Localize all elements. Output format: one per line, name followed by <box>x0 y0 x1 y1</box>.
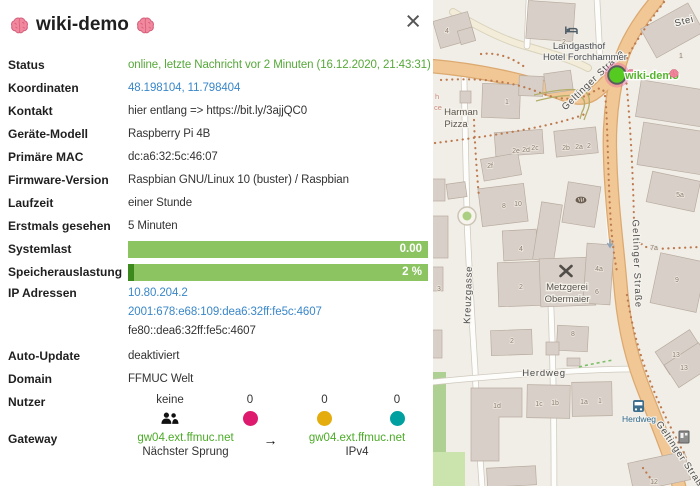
row-label: Koordinaten <box>8 81 128 96</box>
row-label: Erstmals gesehen <box>8 219 128 234</box>
cycleway <box>579 360 613 367</box>
clients-count-wifi5: 0 <box>321 393 327 408</box>
client-dot-pink-icon <box>243 411 258 426</box>
building <box>646 171 700 212</box>
row-label: IP Adressen <box>8 284 128 301</box>
row-label: Domain <box>8 372 128 387</box>
node-map-label[interactable]: wiki-demo <box>624 70 679 82</box>
building <box>637 122 700 175</box>
node-info-panel: × wiki-demo Status online, letzte Nachri… <box>0 0 433 486</box>
page-title: wiki-demo <box>36 14 129 36</box>
housenumber: 7a <box>650 245 658 252</box>
poi-hotel-name-1: Landgasthof <box>553 41 606 52</box>
building <box>635 80 700 127</box>
primary-mac-value: dc:a6:32:5c:46:07 <box>128 150 433 165</box>
node-marker-dot[interactable] <box>608 66 626 84</box>
building <box>446 182 467 199</box>
row-label: Kontakt <box>8 104 128 119</box>
housenumber: 2f <box>487 163 493 170</box>
clients-total: keine <box>156 393 184 408</box>
row-label: Status <box>8 58 128 73</box>
poi-butcher-name-2: Obermaier <box>545 294 590 305</box>
clients-icon <box>161 412 179 425</box>
building <box>546 342 559 355</box>
housenumber: 1c <box>535 401 543 408</box>
system-load-value: 0.00 <box>400 241 422 258</box>
housenumber: 2 <box>519 284 523 291</box>
housenumber: 2d <box>522 147 530 154</box>
housenumber: 9 <box>675 277 679 284</box>
street-label-kreuzgasse: Kreuzgasse <box>462 266 475 325</box>
first-seen-row: Erstmals gesehen 5 Minuten <box>8 215 433 238</box>
building <box>433 216 448 258</box>
map[interactable]: Geltinger Straße Geltinger Straße Geltin… <box>433 0 700 486</box>
client-dot-teal-icon <box>390 411 405 426</box>
row-label: Nutzer <box>8 393 128 410</box>
housenumber: 13 <box>672 352 680 359</box>
poi-pizza-name-2: Pizza <box>444 119 468 130</box>
uptime-value: einer Stunde <box>128 196 433 211</box>
building <box>533 202 563 263</box>
vending-machine-icon <box>679 431 689 443</box>
arrow-right-icon: → <box>264 432 278 448</box>
clients-row: Nutzer keine 0 0 <box>8 393 433 426</box>
clipped-label-fragment: ce <box>434 103 442 112</box>
housenumber: 2 <box>510 338 514 345</box>
memory-usage-row: Speicherauslastung 2 % <box>8 261 433 284</box>
clipped-label-fragment: h <box>435 92 439 101</box>
row-label: Firmware-Version <box>8 173 128 188</box>
contact-value: hier entlang => https://bit.ly/3ajjQC0 <box>128 104 433 119</box>
housenumber: 8 <box>571 331 575 338</box>
first-seen-value: 5 Minuten <box>128 219 433 234</box>
housenumber: 2a <box>575 144 583 151</box>
gateway-next-hop-caption: Nächster Sprung <box>142 446 228 458</box>
housenumber: 2 <box>562 39 566 46</box>
street-label-herdweg: Herdweg <box>522 368 566 379</box>
device-model-value: Raspberry Pi 4B <box>128 127 433 142</box>
firmware-value: Raspbian GNU/Linux 10 (buster) / Raspbia… <box>128 173 433 188</box>
building <box>433 330 442 358</box>
meshviewer-app: × wiki-demo Status online, letzte Nachri… <box>0 0 700 486</box>
housenumber: 2c <box>531 145 539 152</box>
primary-mac-row: Primäre MAC dc:a6:32:5c:46:07 <box>8 146 433 169</box>
panel-header: wiki-demo <box>10 14 433 36</box>
client-dot-yellow-icon <box>317 411 332 426</box>
auto-update-value: deaktiviert <box>128 349 433 364</box>
row-label: Gateway <box>8 432 128 447</box>
memory-usage-bar-fill <box>128 264 134 281</box>
housenumber: 6 <box>595 289 599 296</box>
firmware-row: Firmware-Version Raspbian GNU/Linux 10 (… <box>8 169 433 192</box>
brain-emoji-icon <box>136 17 155 34</box>
building-bakery <box>562 182 601 228</box>
memory-usage-bar: 2 % <box>128 264 428 281</box>
row-label: Primäre MAC <box>8 150 128 165</box>
housenumber: 1 <box>505 99 509 106</box>
building <box>567 358 580 366</box>
housenumber: 3 <box>437 286 441 293</box>
status-row: Status online, letzte Nachricht vor 2 Mi… <box>8 54 433 77</box>
domain-value: FFMUC Welt <box>128 372 433 387</box>
row-label: Systemlast <box>8 242 128 257</box>
housenumber: 12 <box>650 479 658 486</box>
gateway-row: Gateway gw04.ext.ffmuc.net Nächster Spru… <box>8 432 433 458</box>
gateway-next-hop-link[interactable]: gw04.ext.ffmuc.net <box>137 432 233 444</box>
uptime-row: Laufzeit einer Stunde <box>8 192 433 215</box>
building <box>471 388 522 461</box>
grass-area <box>433 452 465 486</box>
gateway-ipv4-link[interactable]: gw04.ext.ffmuc.net <box>309 432 405 444</box>
bus-stop-icon <box>633 400 644 412</box>
ipv4-address-link[interactable]: 10.80.204.2 <box>128 287 188 299</box>
ip-addresses-row: IP Adressen 10.80.204.2 2001:678:e68:109… <box>8 284 433 341</box>
building <box>556 325 588 352</box>
housenumber: 2 <box>587 143 591 150</box>
housenumber: 4 <box>519 246 523 253</box>
building <box>554 127 598 157</box>
map-canvas: Geltinger Straße Geltinger Straße Geltin… <box>433 0 700 486</box>
brain-emoji-icon <box>10 17 29 34</box>
housenumber: 4a <box>595 266 603 273</box>
housenumber: 8 <box>502 203 506 210</box>
building-pizza <box>481 83 520 118</box>
housenumber: 13 <box>680 365 688 372</box>
auto-update-row: Auto-Update deaktiviert <box>8 345 433 368</box>
link-local-address: fe80::dea6:32ff:fe5c:4607 <box>128 322 433 341</box>
status-value: online, letzte Nachricht vor 2 Minuten (… <box>128 58 433 73</box>
contact-row: Kontakt hier entlang => https://bit.ly/3… <box>8 100 433 123</box>
housenumber: 1b <box>551 400 559 407</box>
building <box>460 91 471 103</box>
building <box>487 466 537 486</box>
housenumber: 1 <box>679 53 683 60</box>
turning-circle-green <box>463 212 472 221</box>
system-load-row: Systemlast 0.00 <box>8 238 433 261</box>
close-icon[interactable]: × <box>405 8 421 34</box>
row-label: Laufzeit <box>8 196 128 211</box>
housenumber: 1 <box>598 398 602 405</box>
bakery-icon <box>576 197 587 204</box>
bus-stop-label: Herdweg <box>622 414 656 424</box>
brain-emoji-icon <box>670 70 678 78</box>
building <box>527 385 571 419</box>
row-label: Speicherauslastung <box>8 265 128 280</box>
housenumber: 1d <box>493 403 501 410</box>
clients-count-other: 0 <box>394 393 400 408</box>
building <box>502 229 538 261</box>
row-label: Geräte-Modell <box>8 127 128 142</box>
building <box>433 179 445 201</box>
memory-usage-value: 2 % <box>402 264 422 281</box>
system-load-bar: 0.00 <box>128 241 428 258</box>
device-model-row: Geräte-Modell Raspberry Pi 4B <box>8 123 433 146</box>
building-hotel <box>526 0 576 41</box>
street-label-geltinger: Geltinger Straße <box>629 219 643 308</box>
housenumber: 2b <box>562 145 570 152</box>
domain-row: Domain FFMUC Welt <box>8 368 433 391</box>
coordinates-link[interactable]: 48.198104, 11.798404 <box>128 82 240 94</box>
coordinates-row: Koordinaten 48.198104, 11.798404 <box>8 77 433 100</box>
building <box>572 382 613 417</box>
poi-butcher-name-1: Metzgerei <box>546 282 588 293</box>
housenumber: 10 <box>514 201 522 208</box>
housenumber: 2e <box>512 148 520 155</box>
housenumber: 4 <box>445 28 449 35</box>
poi-pizza-name-1: Harman <box>444 107 478 118</box>
clients-count-wifi24: 0 <box>247 393 253 408</box>
housenumber: 5a <box>676 192 684 199</box>
row-label: Auto-Update <box>8 349 128 364</box>
gateway-ipv4-caption: IPv4 <box>345 446 368 458</box>
poi-hotel-name-2: Hotel Forchhammer <box>543 52 627 63</box>
housenumber: 1a <box>580 399 588 406</box>
ipv6-address-link[interactable]: 2001:678:e68:109:dea6:32ff:fe5c:4607 <box>128 306 322 318</box>
